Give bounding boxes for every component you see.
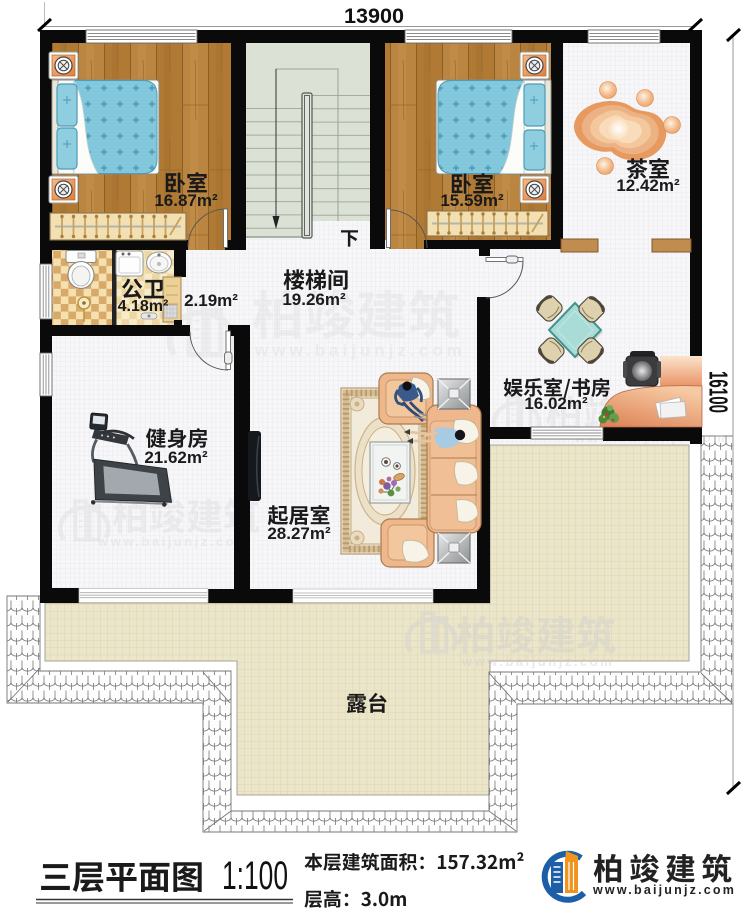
svg-text:13900: 13900 <box>344 5 404 28</box>
svg-text:12.42m²: 12.42m² <box>616 176 680 195</box>
svg-text:16.02m²: 16.02m² <box>524 394 588 413</box>
svg-text:16.87m²: 16.87m² <box>154 191 218 210</box>
svg-text:4.18m²: 4.18m² <box>118 298 169 315</box>
svg-text:16100: 16100 <box>704 371 734 413</box>
svg-text:1:100: 1:100 <box>222 854 288 898</box>
svg-text:21.62m²: 21.62m² <box>144 448 208 467</box>
svg-text:www.baijunjz.com: www.baijunjz.com <box>461 654 614 669</box>
svg-text:28.27m²: 28.27m² <box>267 524 331 543</box>
svg-text:2.19m²: 2.19m² <box>184 291 238 310</box>
svg-text:15.59m²: 15.59m² <box>440 191 504 210</box>
svg-text:www.baijunjz.com: www.baijunjz.com <box>254 341 466 360</box>
svg-text:www.baijunjz.com: www.baijunjz.com <box>592 883 736 897</box>
svg-text:www.baijunjz.com: www.baijunjz.com <box>97 534 250 549</box>
svg-text:19.26m²: 19.26m² <box>282 290 346 309</box>
